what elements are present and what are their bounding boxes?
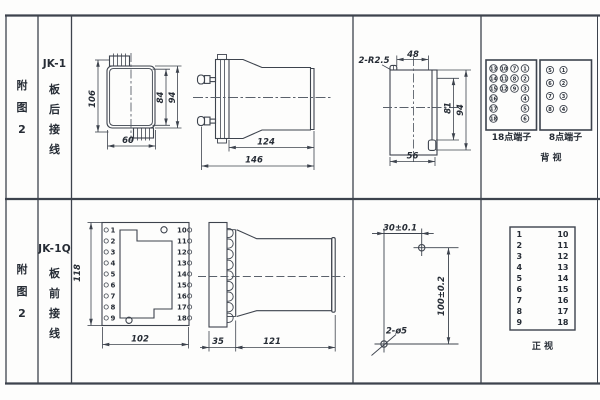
jk1q-side-view-drawing: 35 121 — [198, 223, 345, 352]
terminal-circle — [188, 294, 192, 298]
mounting-screw — [198, 75, 216, 84]
terminal-number: 7 — [513, 66, 517, 72]
terminal-number: 8 — [548, 107, 552, 113]
dim-height-outer: 94 — [168, 92, 178, 104]
terminal-number: 17 — [177, 304, 187, 312]
terminal-number: 2 — [523, 76, 527, 82]
dim-top-width: 48 — [406, 50, 419, 60]
caption-18-point: 18点端子 — [492, 131, 532, 143]
terminal-circle — [188, 261, 192, 265]
terminal-number: 3 — [111, 249, 116, 257]
terminal-number: 17 — [490, 106, 497, 112]
terminal-number: 12 — [501, 86, 508, 92]
dim-total-length: 146 — [245, 156, 263, 166]
terminal-number: 18 — [557, 318, 569, 327]
terminal-number: 4 — [562, 107, 566, 113]
terminal-number: 15 — [177, 282, 187, 290]
dim-flange: 35 — [212, 337, 224, 347]
dim-hole-spacing-v: 100±0.2 — [437, 276, 447, 316]
terminal-number: 5 — [523, 106, 527, 112]
jk1-rear-view-drawing: 2-R2.5 48 81 94 56 — [358, 50, 471, 166]
terminal-number: 16 — [490, 96, 497, 102]
terminal-number: 7 — [111, 293, 116, 301]
terminal-number: 1 — [523, 66, 527, 72]
terminal-circle — [104, 316, 108, 320]
terminal-circle — [188, 239, 192, 243]
terminal-block-top — [110, 56, 130, 66]
terminal-circle — [104, 250, 108, 254]
terminal-number: 10 — [501, 66, 508, 72]
terminal-number: 10 — [557, 230, 569, 239]
dim-height-overall: 106 — [88, 90, 98, 108]
terminal-number: 16 — [557, 296, 569, 305]
terminal-bumps — [227, 228, 233, 322]
dim-body: 121 — [263, 337, 281, 347]
mounting-screw — [198, 117, 216, 126]
terminal-number: 1 — [562, 68, 566, 74]
cover-contour — [120, 230, 172, 318]
terminal-circle — [188, 316, 192, 320]
terminal-number: 3 — [523, 86, 527, 92]
terminal-number: 13 — [557, 263, 568, 272]
terminal-number: 14 — [177, 271, 187, 279]
terminal-number: 5 — [548, 68, 552, 74]
terminal-number: 7 — [517, 296, 523, 305]
terminal-number: 14 — [557, 274, 569, 283]
terminal-number: 9 — [111, 315, 116, 323]
jk1q-front-view-drawing: 123456789101112131415161718 118 102 — [73, 223, 192, 349]
drawing-canvas: 106 84 94 60 — [0, 0, 600, 400]
terminal-number: 7 — [548, 94, 552, 100]
terminal-bump — [227, 250, 233, 259]
terminal-number: 6 — [548, 81, 552, 87]
terminal-number: 4 — [523, 96, 527, 102]
dim-corner-radius: 2-R2.5 — [358, 56, 389, 66]
figure-sheet: 附 图 2 JK-1 板 后 接 线 附 图 2 JK-1Q 板 前 接 线 — [0, 0, 600, 400]
terminal-number: 11 — [177, 238, 187, 246]
hole-diameter-label: 2-ø5 — [386, 327, 407, 337]
terminal-number: 4 — [517, 263, 523, 272]
terminal-number: 1 — [517, 230, 523, 239]
terminal-number: 18 — [177, 315, 187, 323]
terminal-number: 13 — [490, 66, 497, 72]
terminal-circle — [104, 228, 108, 232]
terminal-circle — [188, 305, 192, 309]
dim-body-length: 124 — [257, 138, 275, 148]
drill-plan-drawing: 30±0.1 100±0.2 2-ø5 — [372, 224, 459, 356]
terminals-8: 51627384 — [546, 66, 567, 112]
terminal-number: 6 — [111, 282, 116, 290]
terminal-number: 3 — [517, 252, 523, 261]
terminal-number: 15 — [557, 285, 569, 294]
caption-back-view: 背 视 — [540, 152, 561, 164]
terminal-bump — [227, 313, 233, 322]
terminal-front-view: 123456789101112131415161718 正 视 — [510, 227, 575, 352]
terminal-bump — [227, 239, 233, 248]
dim-height-inner: 84 — [156, 92, 166, 104]
dim-outer-height: 94 — [456, 104, 466, 116]
terminal-bump — [227, 271, 233, 280]
terminal-circle — [188, 272, 192, 276]
dim-hole-spacing-h: 30±0.1 — [383, 224, 417, 234]
terminal-number: 5 — [111, 271, 116, 279]
terminal-number: 17 — [557, 307, 568, 316]
terminal-circle — [104, 261, 108, 265]
terminal-circle — [188, 283, 192, 287]
terminal-number: 9 — [517, 318, 523, 327]
terminal-number: 16 — [177, 293, 187, 301]
terminal-circle — [104, 283, 108, 287]
terminal-number: 14 — [490, 76, 497, 82]
terminal-circle — [188, 228, 192, 232]
terminal-number: 6 — [523, 116, 527, 122]
terminal-number: 11 — [501, 76, 508, 82]
terminal-number: 18 — [490, 116, 497, 122]
dim-width: 60 — [122, 136, 134, 146]
jk1-side-view-drawing: 124 146 — [193, 55, 332, 171]
terminal-number: 1 — [111, 227, 116, 235]
terminal-number: 8 — [111, 304, 116, 312]
terminal-number: 13 — [177, 260, 187, 268]
terminal-number: 5 — [517, 274, 523, 283]
terminal-circle — [104, 305, 108, 309]
terminal-number: 8 — [517, 307, 523, 316]
terminal-number: 12 — [557, 252, 568, 261]
caption-8-point: 8点端子 — [549, 131, 582, 143]
terminal-circle — [188, 250, 192, 254]
terminal-number: 11 — [557, 241, 569, 250]
terminal-block-bottom — [134, 128, 154, 138]
terminal-number: 9 — [513, 86, 517, 92]
dim-height: 118 — [73, 264, 83, 282]
terminal-number: 2 — [517, 241, 523, 250]
terminal-circle — [104, 239, 108, 243]
caption-front-view: 正 视 — [532, 340, 553, 352]
terminal-number: 3 — [562, 94, 566, 100]
dim-inner-height: 81 — [444, 102, 454, 114]
terminal-number: 12 — [177, 249, 187, 257]
dim-bottom-width: 56 — [407, 152, 419, 162]
dim-width: 102 — [131, 335, 149, 345]
terminal-number: 2 — [111, 238, 116, 246]
dimensions — [95, 60, 182, 150]
terminal-number: 6 — [517, 285, 523, 294]
terminal-number: 2 — [562, 81, 566, 87]
terminal-circle — [104, 272, 108, 276]
terminal-table-numbers: 123456789101112131415161718 — [517, 230, 569, 327]
terminal-number: 10 — [177, 227, 187, 235]
terminal-number: 4 — [111, 260, 116, 268]
terminal-bump — [227, 260, 233, 269]
terminal-circle — [104, 294, 108, 298]
mounting-hole — [161, 227, 167, 233]
screw-tab — [428, 140, 435, 150]
terminals-18: 131071141182151293164175186 — [490, 65, 529, 123]
terminal-bump — [227, 292, 233, 301]
jk1-front-view-drawing: 106 84 94 60 — [88, 53, 182, 150]
terminal-number: 15 — [490, 86, 497, 92]
terminal-number: 8 — [513, 76, 517, 82]
terminal-bump — [227, 303, 233, 312]
terminal-bump — [227, 281, 233, 290]
terminal-back-views: 131071141182151293164175186 51627384 18点… — [486, 60, 592, 164]
